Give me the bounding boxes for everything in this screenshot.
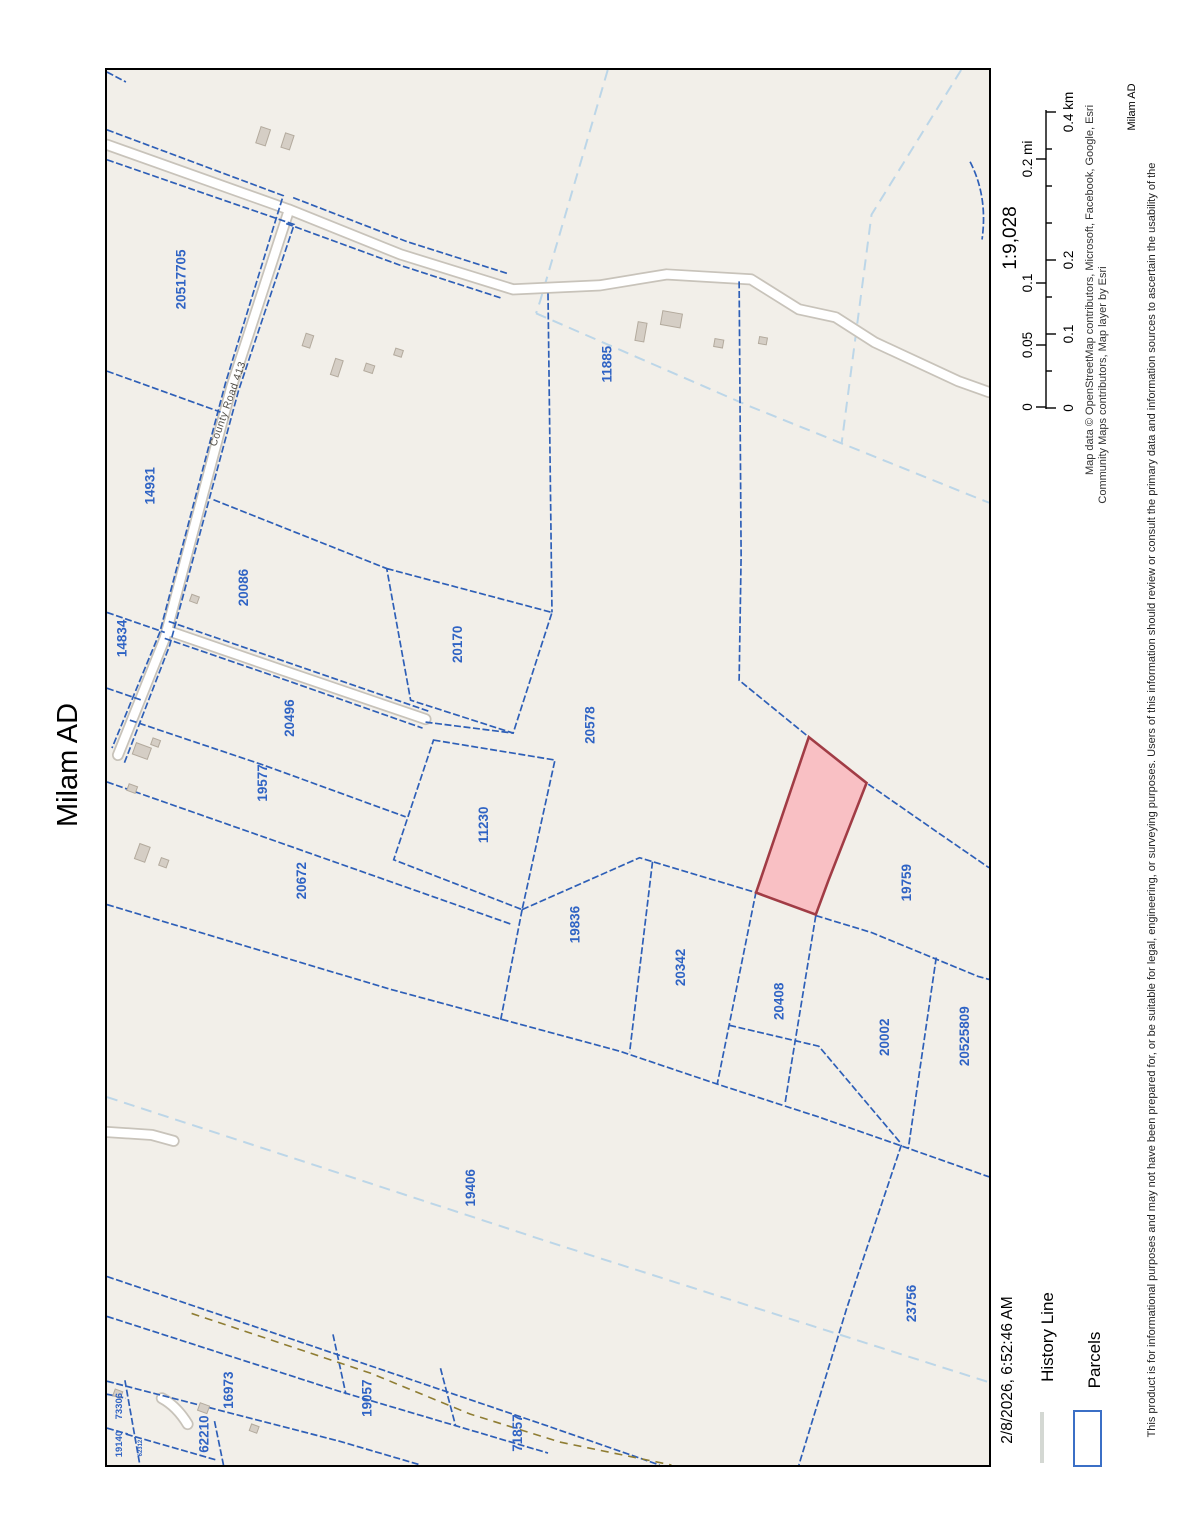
building-footprints xyxy=(113,127,768,1434)
parcel-label-20578: 20578 xyxy=(583,706,598,744)
history-line-olive xyxy=(192,1313,672,1465)
scale-km-04: 0.4 km xyxy=(1062,92,1076,133)
map-attribution-line1: Map data © OpenStreetMap contributors, M… xyxy=(1085,105,1097,475)
date-stamp: 2/8/2026, 6:52:46 AM xyxy=(1000,1296,1016,1443)
scale-km-02: 0.2 xyxy=(1062,251,1076,270)
parcel-label-11885: 11885 xyxy=(599,345,614,382)
scale-km-0: 0 xyxy=(1062,404,1076,412)
parcel-boundaries xyxy=(107,72,989,1465)
parcel-label-20525809: 20525809 xyxy=(957,1006,972,1066)
print-page: Milam AD xyxy=(0,0,1186,1536)
parcel-label-71857: 71857 xyxy=(510,1414,525,1451)
map-frame: 2051770514931148342008620170118852049619… xyxy=(105,68,991,1467)
legend-history-line-swatch xyxy=(1040,1412,1044,1463)
parcel-label-11230: 11230 xyxy=(476,807,491,844)
parcel-label-19577: 19577 xyxy=(255,764,270,801)
legend-parcels-swatch xyxy=(1073,1410,1102,1467)
parcel-label-16973: 16973 xyxy=(221,1372,236,1409)
parcel-label-62210: 62210 xyxy=(196,1415,211,1452)
parcel-label-19140: 19140 xyxy=(114,1431,125,1457)
parcel-label-14931: 14931 xyxy=(143,467,158,505)
parcel-label-20672: 20672 xyxy=(294,862,309,899)
legend-history-line-label: History Line xyxy=(1039,1292,1057,1382)
parcel-label-20496: 20496 xyxy=(282,699,297,736)
parcel-label-20002: 20002 xyxy=(877,1019,892,1056)
page-title: Milam AD xyxy=(53,703,83,827)
parcel-label-14834: 14834 xyxy=(115,619,130,657)
parcel-label-19057: 19057 xyxy=(360,1379,375,1416)
parcel-label-73306: 73306 xyxy=(114,1393,125,1419)
scale-mi-01: 0.1 xyxy=(1021,274,1035,293)
parcel-label-20342: 20342 xyxy=(673,949,688,986)
parcel-label-62312: 62312 xyxy=(138,1439,144,1456)
history-lines xyxy=(107,70,989,1382)
parcel-label-20517705: 20517705 xyxy=(173,249,188,309)
corner-title: Milam AD xyxy=(1127,83,1139,130)
parcel-label-20170: 20170 xyxy=(450,626,465,663)
parcel-label-19759: 19759 xyxy=(899,864,914,901)
parcel-label-23756: 23756 xyxy=(904,1285,919,1322)
scale-mi-0: 0 xyxy=(1021,403,1035,411)
map-canvas[interactable]: 2051770514931148342008620170118852049619… xyxy=(107,70,989,1465)
scale-km-01: 0.1 xyxy=(1062,325,1076,344)
map-attribution-line2: Community Maps contributors, Map layer b… xyxy=(1098,266,1110,503)
parcel-label-20408: 20408 xyxy=(772,982,787,1020)
parcel-label-19836: 19836 xyxy=(568,906,583,943)
highlighted-parcel[interactable] xyxy=(756,737,866,914)
scale-mi-005: 0.05 xyxy=(1021,332,1035,358)
parcel-label-20086: 20086 xyxy=(236,569,251,606)
parcel-label-19406: 19406 xyxy=(463,1169,478,1206)
scale-mi-02: 0.2 mi xyxy=(1021,141,1035,178)
legend-parcels-label: Parcels xyxy=(1086,1332,1104,1389)
disclaimer-text: This product is for informational purpos… xyxy=(1147,163,1159,1438)
